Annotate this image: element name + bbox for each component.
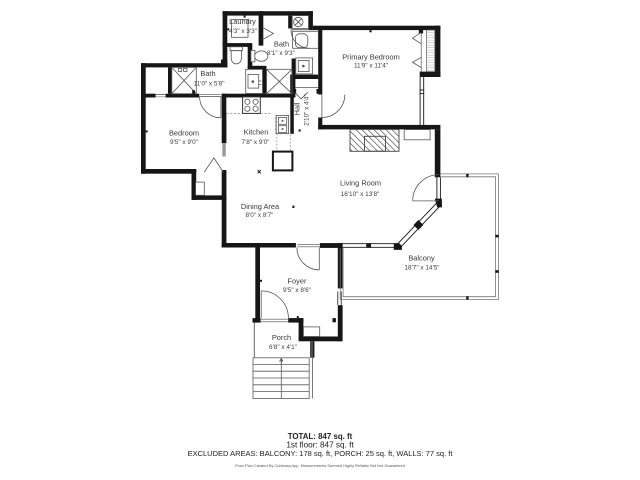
svg-text:Living Room: Living Room xyxy=(340,179,381,188)
svg-text:2'10" x 4'4": 2'10" x 4'4" xyxy=(303,94,310,126)
svg-text:9'5" x 9'0": 9'5" x 9'0" xyxy=(170,139,198,146)
svg-text:6'8" x 4'1": 6'8" x 4'1" xyxy=(269,344,297,351)
svg-text:Hall: Hall xyxy=(293,102,302,115)
svg-text:8'1" x 9'3": 8'1" x 9'3" xyxy=(267,50,295,57)
svg-text:Floor Plan Created By Cubicasa: Floor Plan Created By Cubicasa App. Meas… xyxy=(235,463,405,468)
svg-text:Bedroom: Bedroom xyxy=(169,129,199,138)
svg-text:16'10" x 13'8": 16'10" x 13'8" xyxy=(341,191,380,198)
svg-text:Porch: Porch xyxy=(272,333,291,342)
svg-text:8'0" x 8'7": 8'0" x 8'7" xyxy=(246,212,274,219)
svg-text:Balcony: Balcony xyxy=(408,254,435,263)
svg-text:Bath: Bath xyxy=(200,69,215,78)
svg-text:11'0" x 5'8": 11'0" x 5'8" xyxy=(193,80,224,87)
svg-text:Primary Bedroom: Primary Bedroom xyxy=(342,53,400,62)
svg-text:Dining Area: Dining Area xyxy=(241,202,280,211)
svg-text:4'3" x 3'3": 4'3" x 3'3" xyxy=(229,28,257,35)
svg-text:7'8" x 9'0": 7'8" x 9'0" xyxy=(242,139,270,146)
svg-text:Foyer: Foyer xyxy=(288,276,307,285)
svg-text:11'9" x 11'4": 11'9" x 11'4" xyxy=(354,63,388,70)
svg-text:Laundry: Laundry xyxy=(229,17,256,26)
svg-text:Bath: Bath xyxy=(274,39,289,48)
svg-text:TOTAL: 847 sq. ft: TOTAL: 847 sq. ft xyxy=(288,432,353,441)
svg-text:EXCLUDED AREAS: BALCONY: 178 s: EXCLUDED AREAS: BALCONY: 178 sq. ft, POR… xyxy=(188,449,454,458)
svg-text:Kitchen: Kitchen xyxy=(244,128,269,137)
svg-text:9'5" x 8'6": 9'5" x 8'6" xyxy=(283,287,311,294)
svg-text:18'7" x 14'5": 18'7" x 14'5" xyxy=(404,265,439,272)
